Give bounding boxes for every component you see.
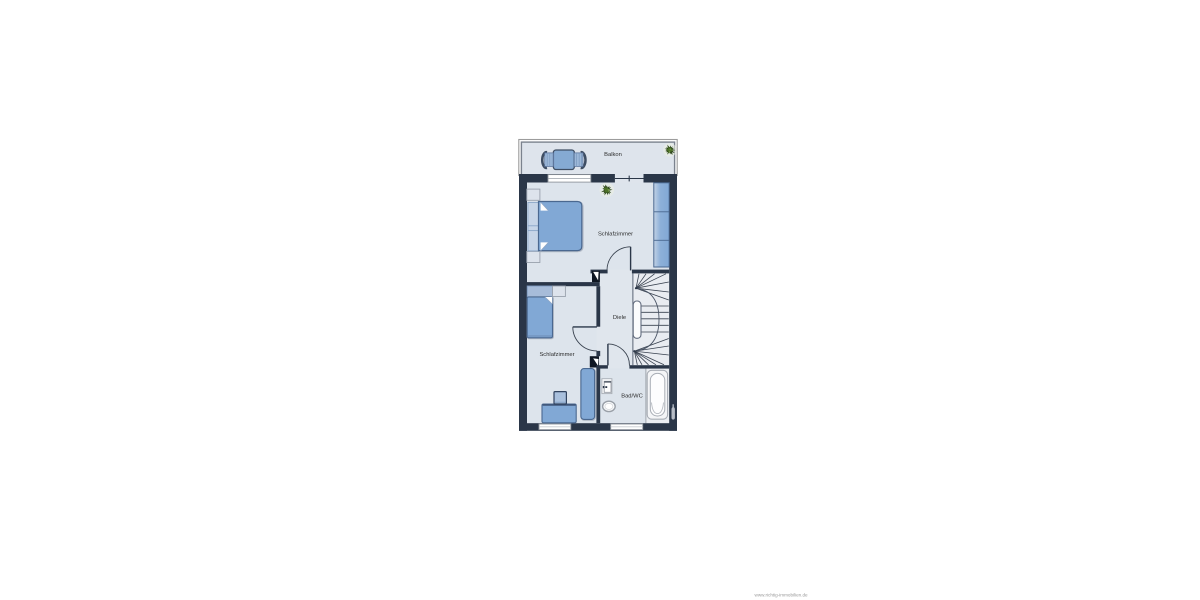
svg-text:www.richtig-immobilien.de: www.richtig-immobilien.de: [755, 592, 809, 597]
svg-text:Balkon: Balkon: [604, 152, 622, 158]
svg-text:Schlafzimmer: Schlafzimmer: [539, 352, 574, 358]
svg-text:Diele: Diele: [613, 315, 626, 321]
svg-text:Bad/WC: Bad/WC: [621, 394, 643, 400]
svg-text:Schlafzimmer: Schlafzimmer: [598, 232, 633, 238]
